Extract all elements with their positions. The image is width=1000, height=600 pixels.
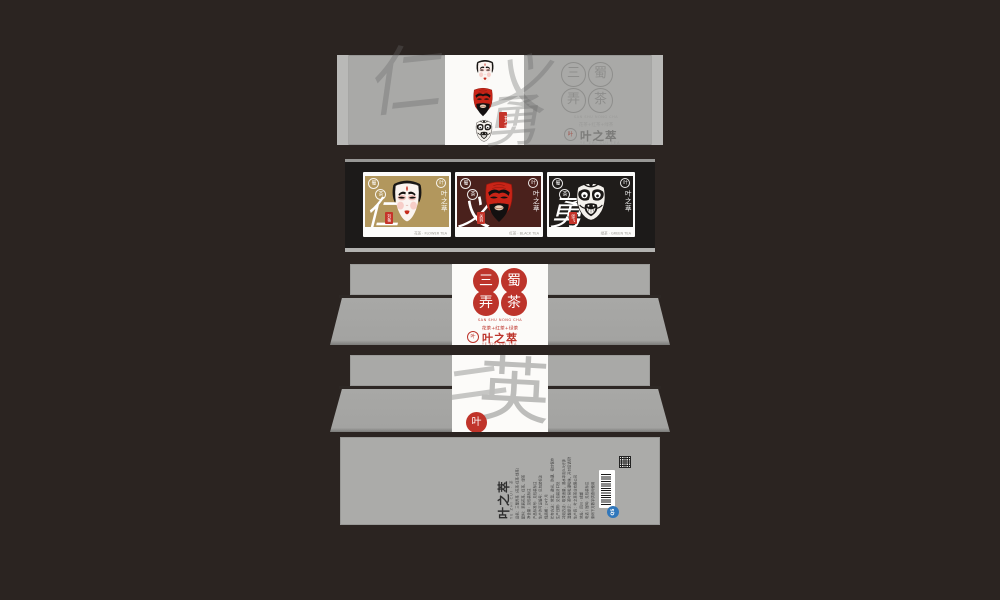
card-art: 蜀 茶 仁 刘备 叶 叶之萃: [365, 176, 449, 227]
logo-tagline: YE ZHI CUI TEA: [580, 141, 640, 145]
tea-card-black-tea: 蜀 茶 义 关羽 叶 叶之萃 红茶 · BLACK TEA: [455, 172, 543, 237]
logo-ring-icon: 叶: [436, 178, 446, 188]
brand-seal-circle: 茶: [588, 88, 613, 113]
logo-tagline: YE ZHI CUI TEA: [482, 342, 542, 346]
rotated-info-layout: 叶之萃 YE ZHI CUI · 茶 品名：三蜀弄茶（花茶·红茶·绿茶）配料：茉…: [495, 455, 633, 521]
brand-latin-name: SAN SHU NONG CHA: [553, 115, 639, 119]
barcode-bars: [601, 473, 611, 505]
lid-brand-block: 三 蜀 弄 茶 SAN SHU NONG CHA 花茶+红茶+绿茶 叶 叶之萃 …: [337, 55, 663, 145]
card-caption: 绿茶 · GREEN TEA: [571, 231, 631, 236]
white-face-mask-icon: [390, 178, 424, 224]
red-seal-stamp: 叶: [466, 412, 487, 432]
barcode: [599, 470, 615, 508]
qs-label: QS: [607, 506, 619, 518]
logo-ring-icon: 叶: [528, 178, 538, 188]
logo-mark: 叶: [565, 129, 576, 140]
back-logo-tagline: YE ZHI CUI · 茶: [509, 459, 514, 519]
black-white-face-mask-icon: [574, 178, 608, 224]
logo-name-vertical: 叶之萃: [533, 190, 540, 220]
card-caption: 花茶 · FLOWER TEA: [387, 231, 447, 236]
side-watermark-ying: 英: [476, 355, 548, 429]
qr-code-icon: [619, 456, 631, 468]
info-line: 品名：三蜀弄茶（花茶·红茶·绿茶）: [515, 457, 521, 519]
side-center-strip: 三 英 叶: [452, 355, 548, 432]
logo-name-vertical: 叶之萃: [441, 190, 448, 220]
lid-panel: 仁 义 勇 珍藏版 三 蜀 弄 茶 SAN SHU NONG CHA 花茶+红茶…: [337, 55, 663, 145]
brand-latin-name: SAN SHU NONG CHA: [452, 318, 548, 322]
card-seal-circle: 蜀: [368, 178, 379, 189]
brand-seal-circle: 蜀: [588, 62, 613, 87]
logo-ring-icon: 叶: [620, 178, 630, 188]
product-info-lines: 品名：三蜀弄茶（花茶·红茶·绿茶）配料：茉莉花茶、红茶、绿茶净含量：见包装标注产…: [515, 457, 597, 519]
back-info-block: 叶之萃 YE ZHI CUI · 茶 品名：三蜀弄茶（花茶·红茶·绿茶）配料：茉…: [495, 455, 633, 521]
qs-certification-icon: QS: [607, 506, 619, 518]
red-face-mask-icon: [482, 178, 516, 224]
edition-seal-text: 珍藏版: [499, 112, 507, 128]
brand-stamp: 茶: [501, 290, 527, 316]
front-center-strip: 三 蜀 弄 茶 SAN SHU NONG CHA 花茶+红茶+绿茶 叶 叶之萃 …: [452, 264, 548, 345]
card-seal-circle: 蜀: [460, 178, 471, 189]
card-art: 蜀 茶 勇 张飞 叶 叶之萃: [549, 176, 633, 227]
logo-ring-icon: 叶: [564, 128, 577, 141]
tea-card-flower: 蜀 茶 仁 刘备 叶 叶之萃 花茶 · FLOWER TEA: [363, 172, 451, 237]
brand-seal-circle: 弄: [561, 88, 586, 113]
tea-card-green-tea: 蜀 茶 勇 张飞 叶 叶之萃 绿茶 · GREEN TEA: [547, 172, 635, 237]
back-panel: 叶之萃 YE ZHI CUI · 茶 品名：三蜀弄茶（花茶·红茶·绿茶）配料：茉…: [340, 437, 660, 525]
logo-name-vertical: 叶之萃: [625, 190, 632, 220]
info-line: 条码下方数字供查询使用: [590, 457, 596, 519]
brand-stamp: 弄: [473, 290, 499, 316]
card-caption: 红茶 · BLACK TEA: [479, 231, 539, 236]
card-seal-circle: 蜀: [552, 178, 563, 189]
edition-seal: 珍藏版: [499, 112, 507, 128]
card-art: 蜀 茶 义 关羽 叶 叶之萃: [457, 176, 541, 227]
shelf-panel: 蜀 茶 仁 刘备 叶 叶之萃 花茶 · FLOWER TEA 蜀 茶 义 关羽 …: [345, 159, 655, 252]
logo-ring-icon: 叶: [467, 331, 479, 343]
brand-seal-circle: 三: [561, 62, 586, 87]
packaging-mockup-stage: 仁 义 勇 珍藏版 三 蜀 弄 茶 SAN SHU NONG CHA 花茶+红茶…: [0, 0, 1000, 600]
tea-types-line: 花茶+红茶+绿茶: [553, 121, 639, 128]
